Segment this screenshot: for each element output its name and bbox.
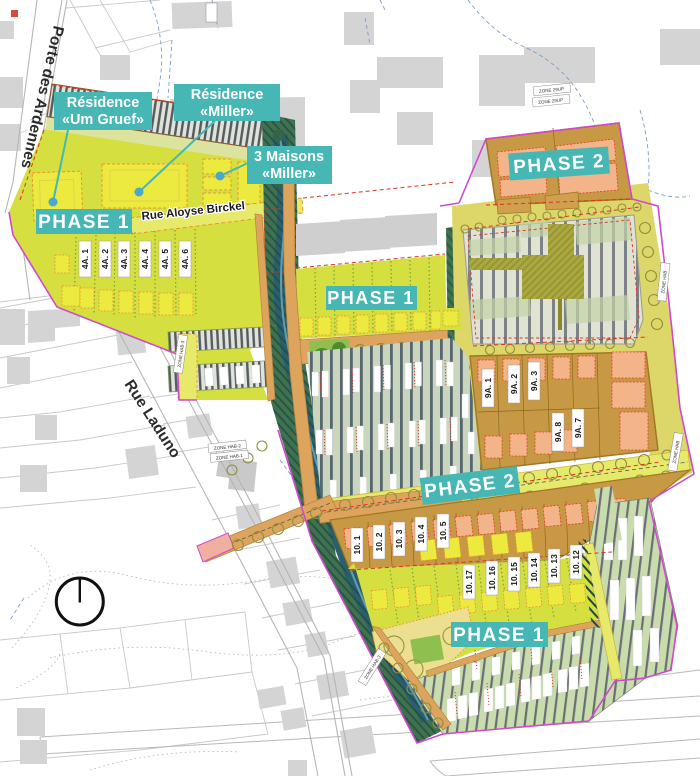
svg-text:10. 4: 10. 4 [416,524,426,543]
svg-text:PHASE 1: PHASE 1 [327,288,415,308]
svg-text:9A. 1: 9A. 1 [483,378,493,399]
svg-text:10. 17: 10. 17 [464,570,474,594]
svg-text:9A. 3: 9A. 3 [529,371,539,392]
svg-text:10. 12: 10. 12 [571,550,581,574]
svg-text:4A. 6: 4A. 6 [180,249,190,270]
svg-text:10. 14: 10. 14 [529,558,539,582]
svg-text:4A. 5: 4A. 5 [160,249,170,270]
svg-text:10. 15: 10. 15 [509,562,519,586]
svg-text:9A. 2: 9A. 2 [509,374,519,395]
svg-text:9A. 7: 9A. 7 [573,418,583,439]
svg-text:10. 3: 10. 3 [394,529,404,548]
svg-text:Résidence: Résidence [67,95,140,111]
svg-text:4A. 2: 4A. 2 [100,249,110,270]
svg-text:«Miller»: «Miller» [262,166,316,182]
svg-text:10. 2: 10. 2 [374,532,384,551]
svg-text:PHASE 1: PHASE 1 [38,212,130,233]
svg-text:10. 13: 10. 13 [549,554,559,578]
svg-text:«Miller»: «Miller» [200,104,254,120]
svg-text:«Um Gruef»: «Um Gruef» [62,112,144,128]
svg-text:10. 5: 10. 5 [438,521,448,540]
svg-text:10. 1: 10. 1 [352,535,362,554]
svg-text:Résidence: Résidence [191,87,264,103]
svg-text:4A. 3: 4A. 3 [119,249,129,270]
svg-text:4A. 4: 4A. 4 [140,249,150,270]
svg-text:4A. 1: 4A. 1 [80,249,90,270]
svg-text:10. 16: 10. 16 [487,566,497,590]
svg-text:PHASE 1: PHASE 1 [453,625,545,646]
svg-text:3 Maisons: 3 Maisons [254,149,324,165]
svg-text:9A. 8: 9A. 8 [553,422,563,443]
